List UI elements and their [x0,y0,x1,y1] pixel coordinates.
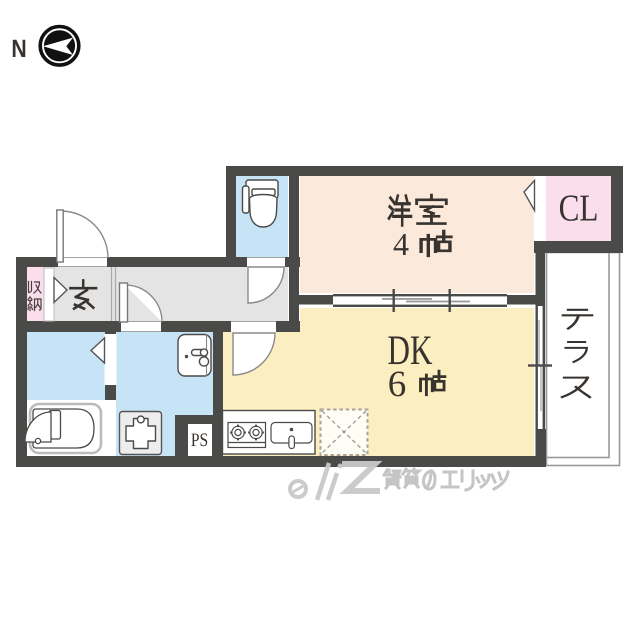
svg-text:PS: PS [191,430,208,451]
svg-text:N: N [11,35,26,63]
svg-text:CL: CL [559,188,599,230]
svg-text:4: 4 [393,226,409,262]
svg-text:6: 6 [388,364,407,405]
